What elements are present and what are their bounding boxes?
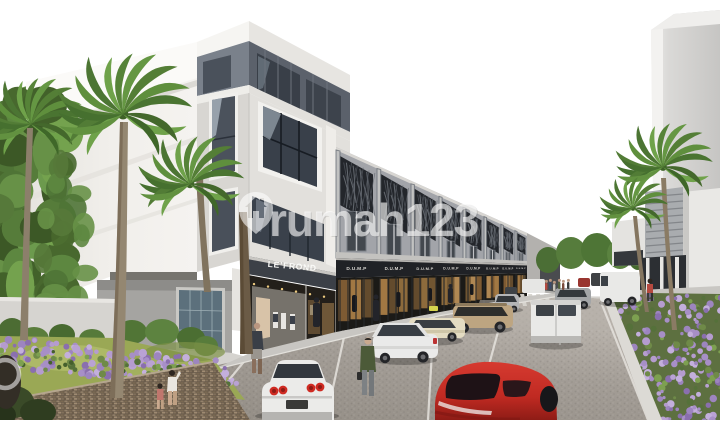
svg-text:D.U.M.P: D.U.M.P xyxy=(385,266,404,271)
svg-text:D.U.M.P: D.U.M.P xyxy=(466,267,481,271)
svg-text:D.U.M.P: D.U.M.P xyxy=(516,268,526,270)
svg-text:D.U.M.P: D.U.M.P xyxy=(502,267,513,270)
svg-text:rumah123: rumah123 xyxy=(269,194,478,246)
svg-text:D.U.M.P: D.U.M.P xyxy=(416,266,433,271)
svg-text:D.U.M.P: D.U.M.P xyxy=(346,266,367,272)
svg-text:D.U.M.P: D.U.M.P xyxy=(486,267,499,271)
svg-text:D.U.M.P: D.U.M.P xyxy=(443,267,459,271)
